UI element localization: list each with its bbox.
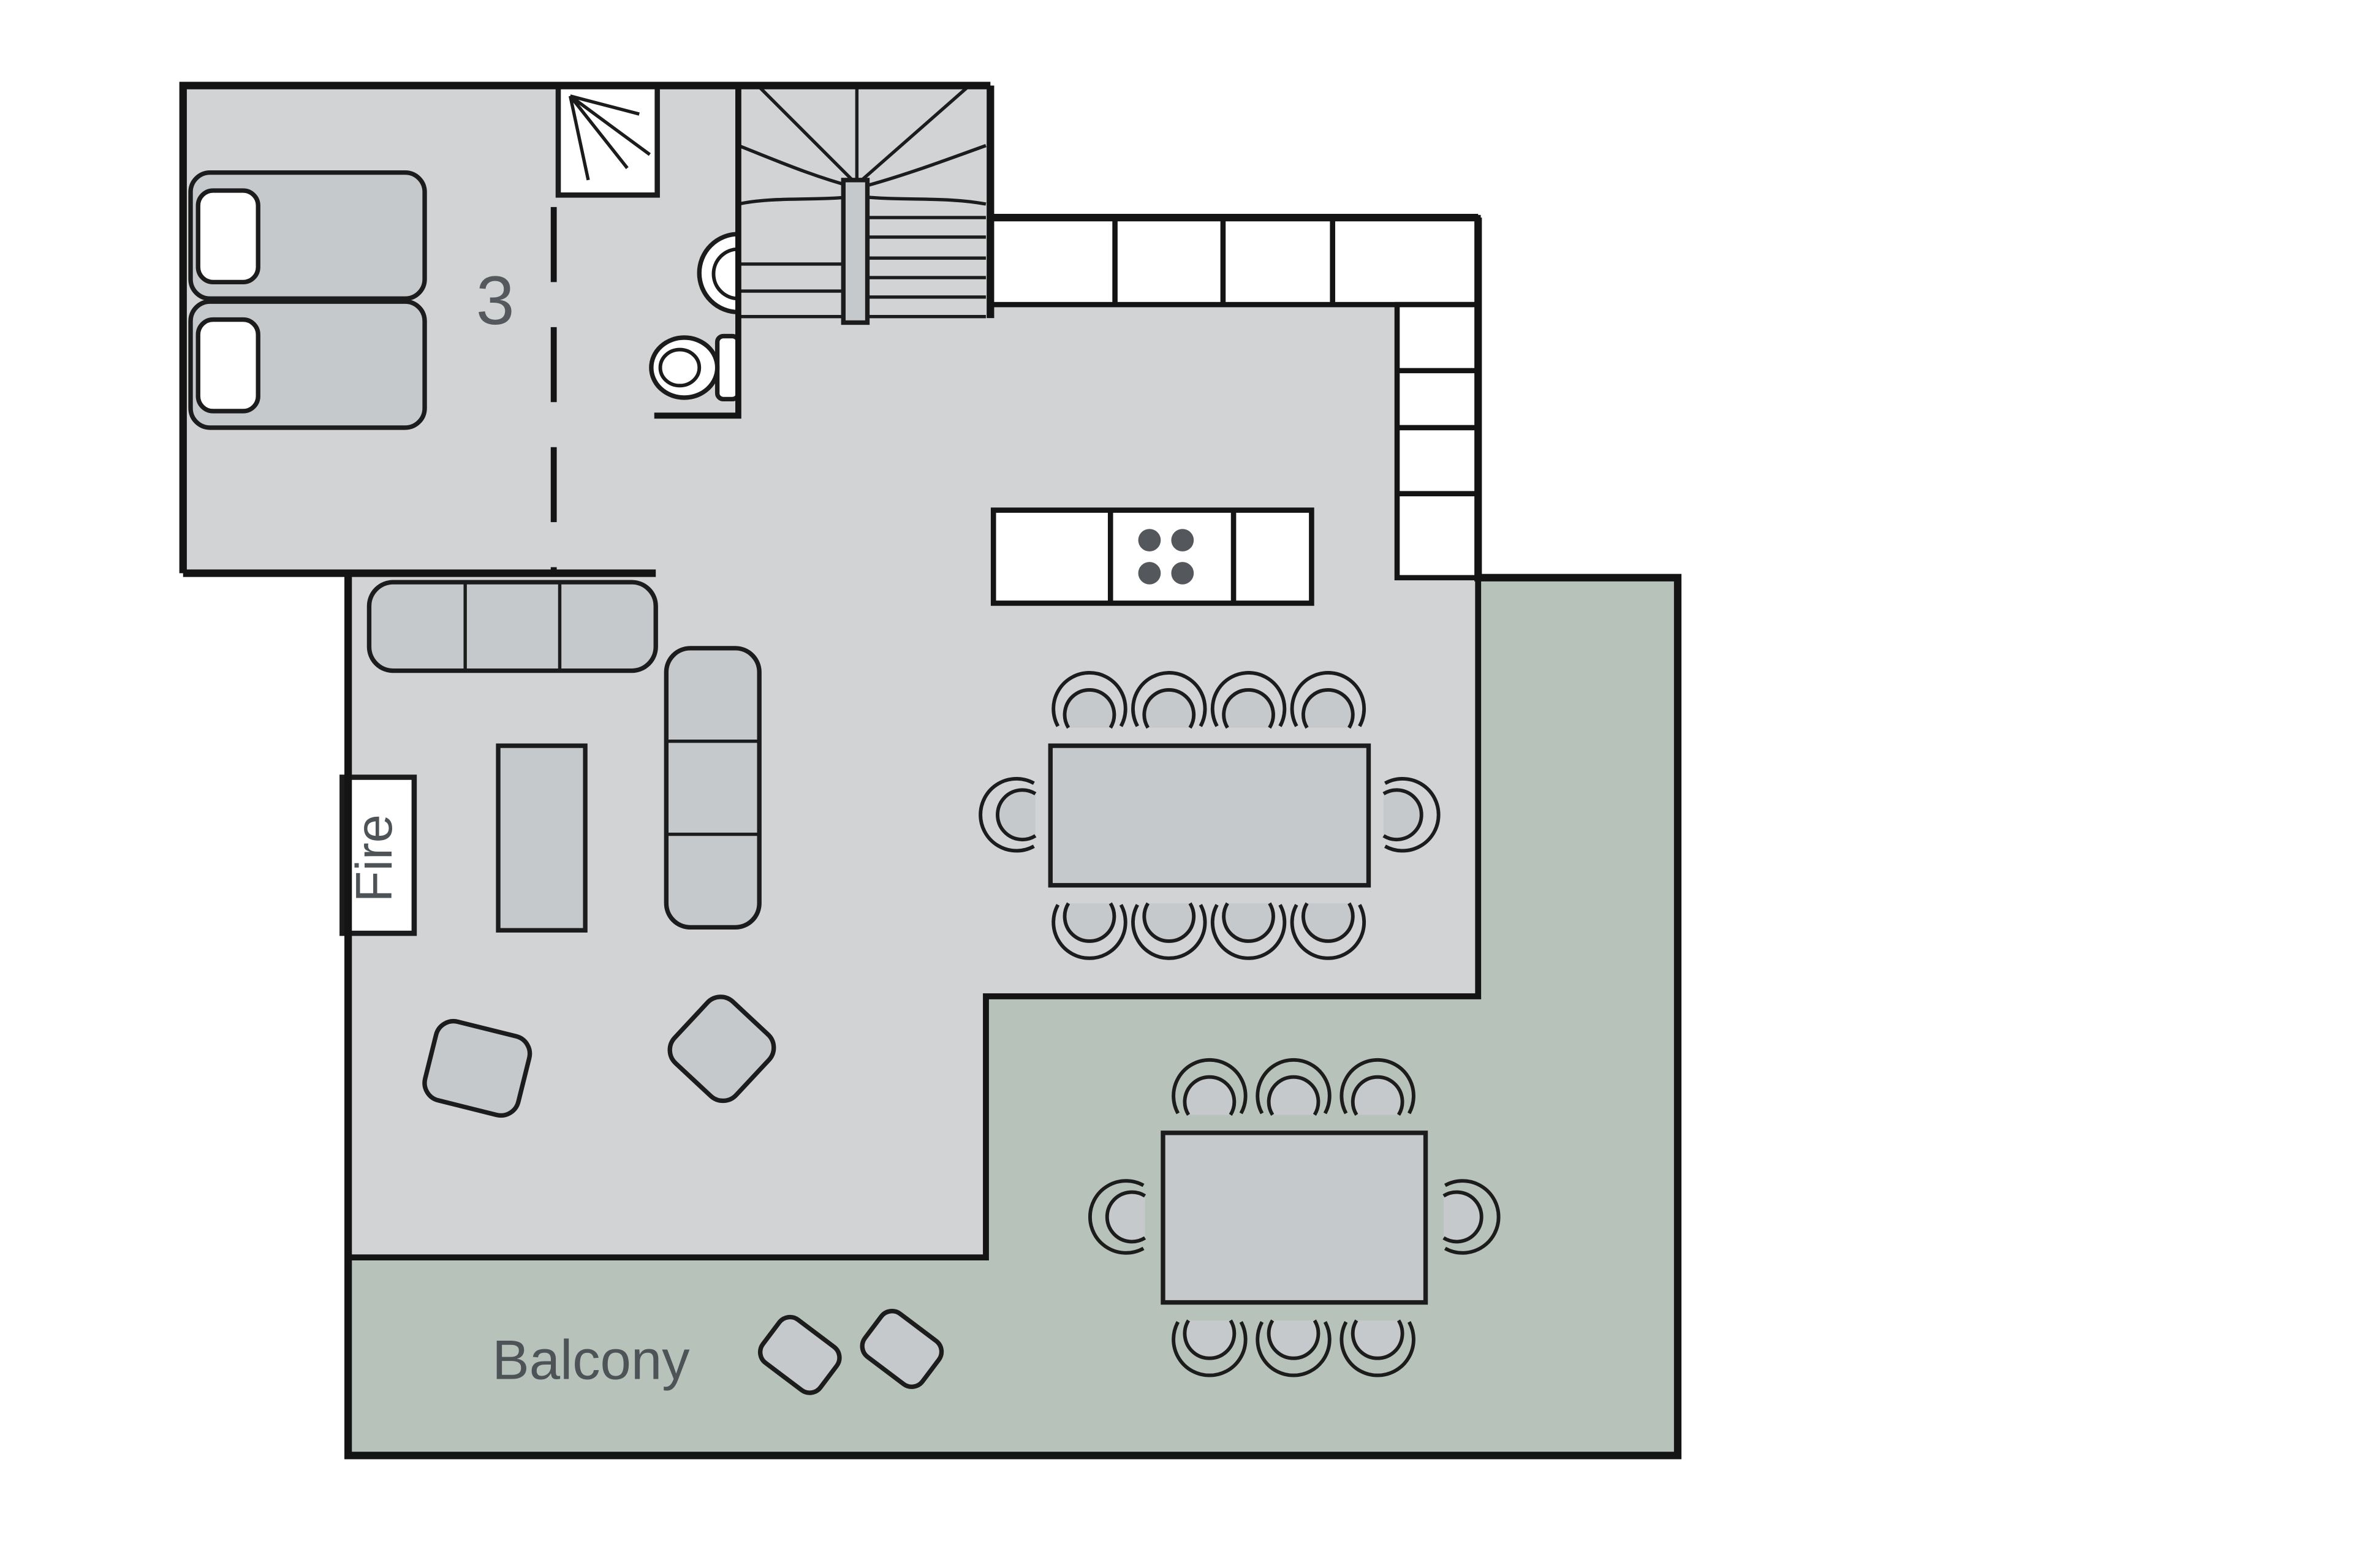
bedroom-number-label: 3 [476,262,515,339]
floor-plan-page: 3 Fire [0,0,2353,1568]
floor-plan: 3 Fire [0,0,2353,1568]
kitchen-island [993,510,1311,604]
dining-table [1050,746,1368,885]
toilet-cistern [718,336,738,400]
toilet-bowl [661,350,700,386]
kitchen-counter-top-row [990,218,1478,305]
balcony-table [1163,1133,1426,1303]
balcony-label: Balcony [492,1329,690,1391]
fireplace-label: Fire [346,814,403,902]
sofa-chaise [666,648,759,927]
sofa-three-seat [369,582,656,670]
kitchen-counter-side-column [1397,305,1478,578]
bed-2-pillow [198,320,258,411]
coffee-table [498,746,585,930]
stair-newel-post [843,180,867,323]
bed-1-pillow [198,191,258,282]
